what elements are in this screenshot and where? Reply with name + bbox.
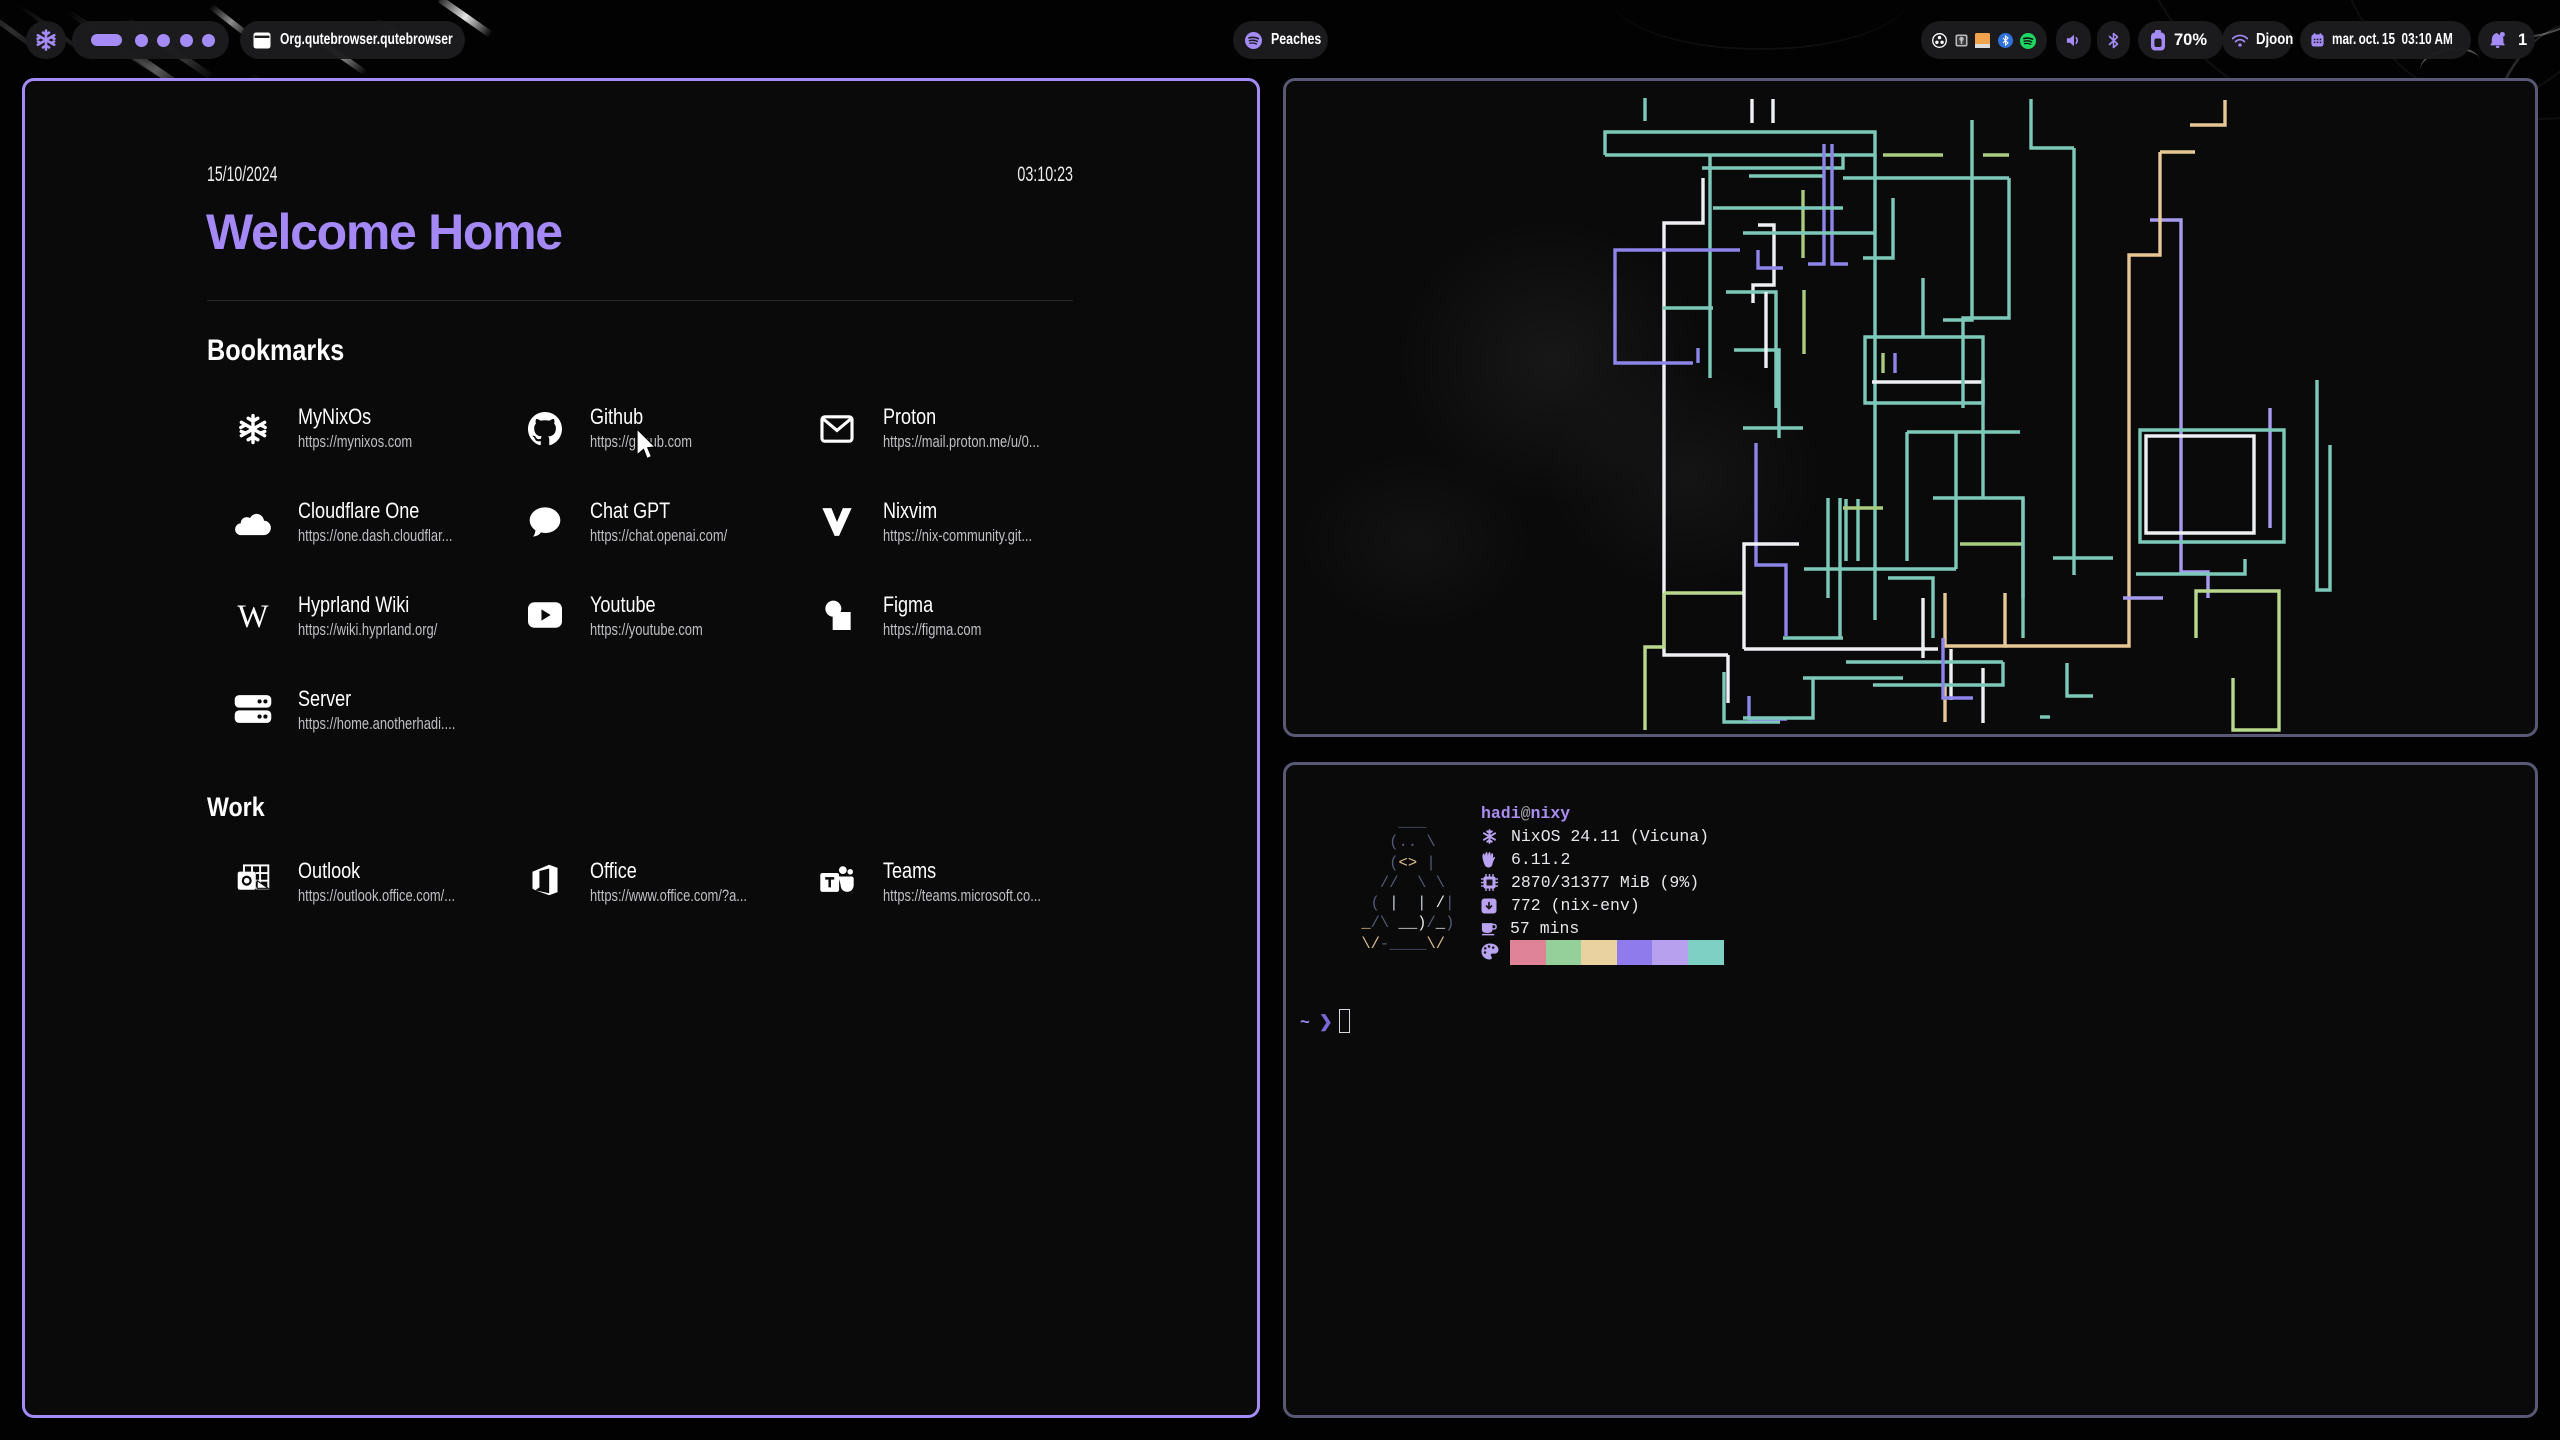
svg-text:W: W [237, 600, 269, 632]
